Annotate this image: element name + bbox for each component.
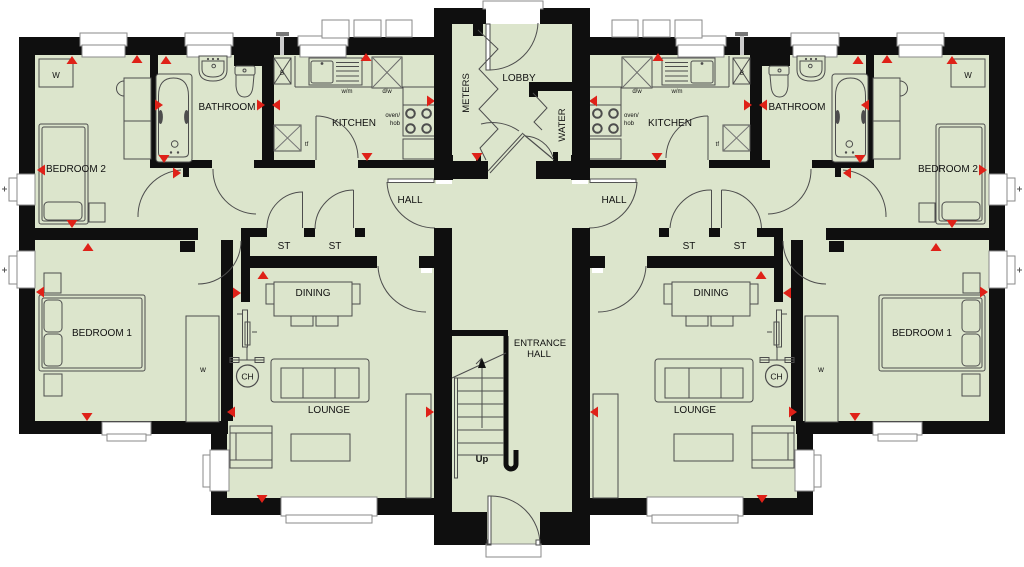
svg-text:METERS: METERS [461,73,472,113]
svg-text:CH: CH [770,372,782,382]
svg-text:BEDROOM 2: BEDROOM 2 [918,164,978,175]
svg-text:d/w: d/w [382,89,392,95]
svg-text:CH: CH [241,372,253,382]
svg-text:ST: ST [329,241,342,252]
svg-text:w/m: w/m [671,89,683,95]
svg-text:ENTRANCE: ENTRANCE [514,338,566,349]
svg-text:hob: hob [624,121,635,127]
svg-text:LOBBY: LOBBY [502,73,536,84]
svg-text:ST: ST [278,241,291,252]
svg-text:B: B [740,71,744,77]
svg-text:DINING: DINING [296,288,331,299]
svg-text:w: w [817,365,824,374]
svg-text:HALL: HALL [527,349,551,360]
svg-text:W: W [52,71,60,80]
svg-text:KITCHEN: KITCHEN [648,118,692,129]
svg-text:w/m: w/m [341,89,353,95]
svg-text:HALL: HALL [601,195,626,206]
svg-text:d/w: d/w [632,89,642,95]
svg-text:ST: ST [683,241,696,252]
svg-text:w: w [199,365,206,374]
svg-text:ST: ST [734,241,747,252]
svg-text:hob: hob [390,121,401,127]
svg-text:BATHROOM: BATHROOM [768,102,825,113]
svg-text:LOUNGE: LOUNGE [308,405,351,416]
svg-text:W: W [964,71,972,80]
svg-text:KITCHEN: KITCHEN [332,118,376,129]
svg-text:WATER: WATER [557,108,568,141]
svg-text:BEDROOM 2: BEDROOM 2 [46,164,106,175]
svg-text:DINING: DINING [694,288,729,299]
svg-text:tf: tf [716,142,720,148]
svg-text:BEDROOM 1: BEDROOM 1 [892,328,952,339]
svg-text:B: B [280,71,284,77]
svg-text:BEDROOM 1: BEDROOM 1 [72,328,132,339]
svg-text:LOUNGE: LOUNGE [674,405,717,416]
svg-text:Up: Up [476,454,489,465]
svg-text:BATHROOM: BATHROOM [198,102,255,113]
svg-text:tf: tf [305,142,309,148]
svg-text:HALL: HALL [397,195,422,206]
svg-text:oven/: oven/ [385,113,400,119]
svg-text:oven/: oven/ [624,113,639,119]
